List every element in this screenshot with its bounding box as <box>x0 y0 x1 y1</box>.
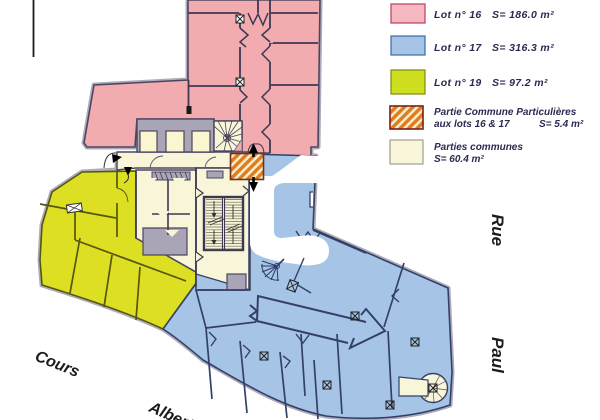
svg-text:S= 60.4 m²: S= 60.4 m² <box>434 154 484 165</box>
svg-text:Parties communes: Parties communes <box>434 142 523 153</box>
svg-text:Lot n° 16S= 186.0 m²: Lot n° 16S= 186.0 m² <box>434 9 554 21</box>
svg-text:Cours: Cours <box>33 348 82 381</box>
svg-text:Rue: Rue <box>488 214 507 246</box>
svg-text:Paul: Paul <box>488 337 507 374</box>
svg-text:Lot n° 19S= 97.2 m²: Lot n° 19S= 97.2 m² <box>434 77 548 89</box>
svg-text:aux lots 16 & 17S= 5.4 m²: aux lots 16 & 17S= 5.4 m² <box>434 119 584 130</box>
svg-text:Partie Commune Particulières: Partie Commune Particulières <box>434 107 577 118</box>
svg-text:Albert: Albert <box>145 399 196 420</box>
svg-text:Lot n° 17S= 316.3 m²: Lot n° 17S= 316.3 m² <box>434 42 554 54</box>
